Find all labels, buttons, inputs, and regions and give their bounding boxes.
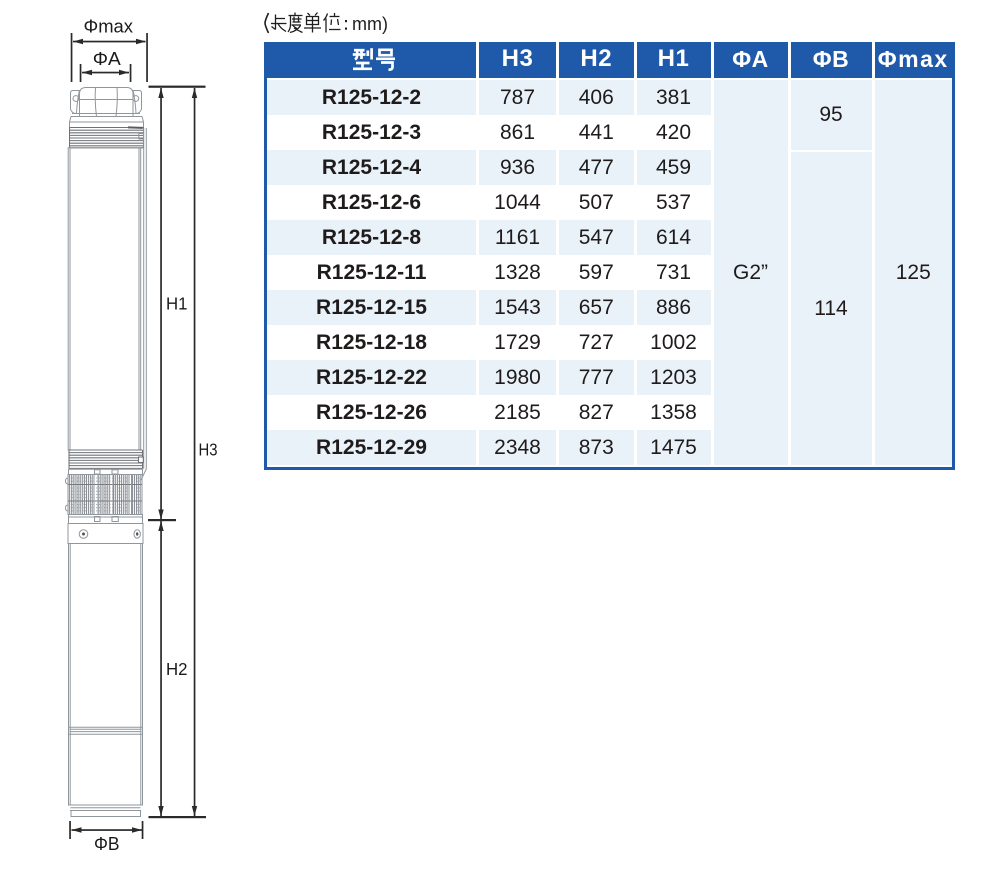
svg-text:ΦB: ΦB bbox=[94, 834, 120, 854]
svg-text:Φmax: Φmax bbox=[84, 16, 134, 36]
svg-text:H1: H1 bbox=[166, 294, 188, 314]
svg-text:ΦA: ΦA bbox=[93, 49, 121, 69]
svg-text:mm): mm) bbox=[352, 14, 388, 34]
svg-text:H3: H3 bbox=[199, 440, 218, 460]
svg-text:H2: H2 bbox=[166, 659, 188, 679]
